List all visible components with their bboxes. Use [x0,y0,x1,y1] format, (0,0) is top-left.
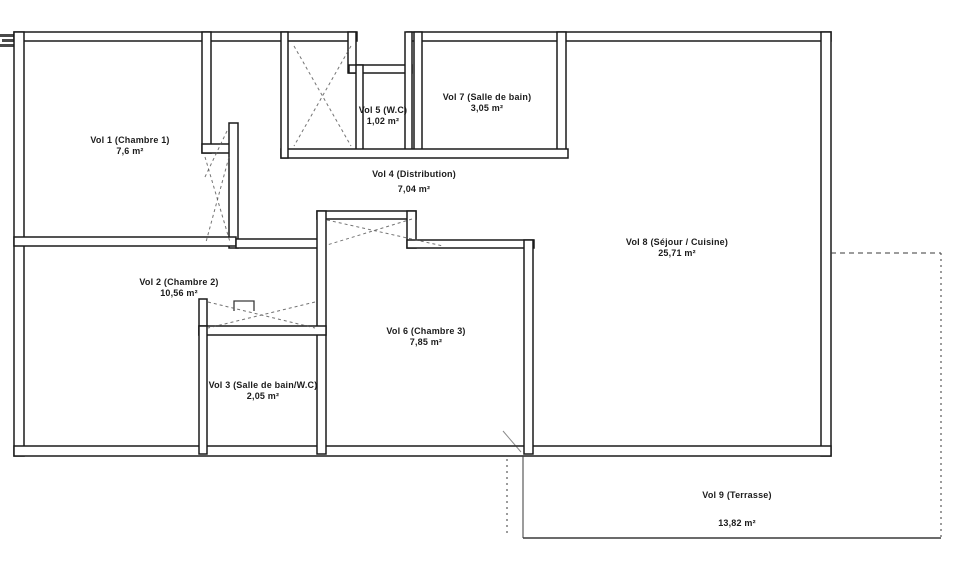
wall-segment [414,32,422,157]
door-jamb-mark [234,301,254,311]
room-label-vol8: Vol 8 (Séjour / Cuisine) 25,71 m² [626,237,728,259]
room-name: Vol 8 (Séjour / Cuisine) [626,237,728,247]
room-name: Vol 9 (Terrasse) [702,490,771,500]
room-area: 3,05 m² [443,103,532,114]
room-name: Vol 1 (Chambre 1) [90,135,169,145]
room-name: Vol 6 (Chambre 3) [386,326,465,336]
room-area: 7,04 m² [372,184,456,195]
wall-segment [199,326,207,454]
wall-segment [821,32,831,456]
wall-segment [405,32,412,157]
wall-segment [281,149,568,158]
room-label-vol7: Vol 7 (Salle de bain) 3,05 m² [443,92,532,114]
room-name: Vol 2 (Chambre 2) [139,277,218,287]
wall-segment [524,240,533,454]
wall-segment [236,239,324,248]
wall-segment [14,237,236,246]
room-area: 10,56 m² [139,288,218,299]
room-label-vol2: Vol 2 (Chambre 2) 10,56 m² [139,277,218,299]
closet-cross-hallway [294,46,351,146]
room-area: 13,82 m² [702,518,771,529]
room-area: 7,85 m² [386,337,465,348]
wall-segment [557,32,566,157]
room-name: Vol 7 (Salle de bain) [443,92,532,102]
room-label-vol9: Vol 9 (Terrasse) 13,82 m² [702,490,771,529]
floor-plan-page: Vol 1 (Chambre 1) 7,6 m² Vol 2 (Chambre … [0,0,967,575]
room-label-vol1: Vol 1 (Chambre 1) 7,6 m² [90,135,169,157]
room-area: 2,05 m² [209,391,318,402]
closet-cross-vol2 [208,302,315,328]
wall-segment [14,446,831,456]
room-label-vol5: Vol 5 (W.C) 1,02 m² [359,105,408,127]
dash-line [208,302,315,328]
wall-segment [14,32,357,41]
room-label-vol3: Vol 3 (Salle de bain/W.C) 2,05 m² [209,380,318,402]
wall-segment [199,326,326,335]
room-area: 25,71 m² [626,248,728,259]
room-label-vol6: Vol 6 (Chambre 3) 7,85 m² [386,326,465,348]
wall-segment [281,32,288,158]
wall-segment [407,32,831,41]
wall-segment [202,32,211,153]
room-area: 1,02 m² [359,116,408,127]
room-name: Vol 5 (W.C) [359,105,408,115]
room-label-vol4: Vol 4 (Distribution) 7,04 m² [372,169,456,195]
wall-segment [407,240,534,248]
room-name: Vol 4 (Distribution) [372,169,456,179]
dash-line [206,157,229,242]
room-name: Vol 3 (Salle de bain/W.C) [209,380,318,390]
room-area: 7,6 m² [90,146,169,157]
wall-segment [317,211,416,219]
wall-segment [229,123,238,248]
